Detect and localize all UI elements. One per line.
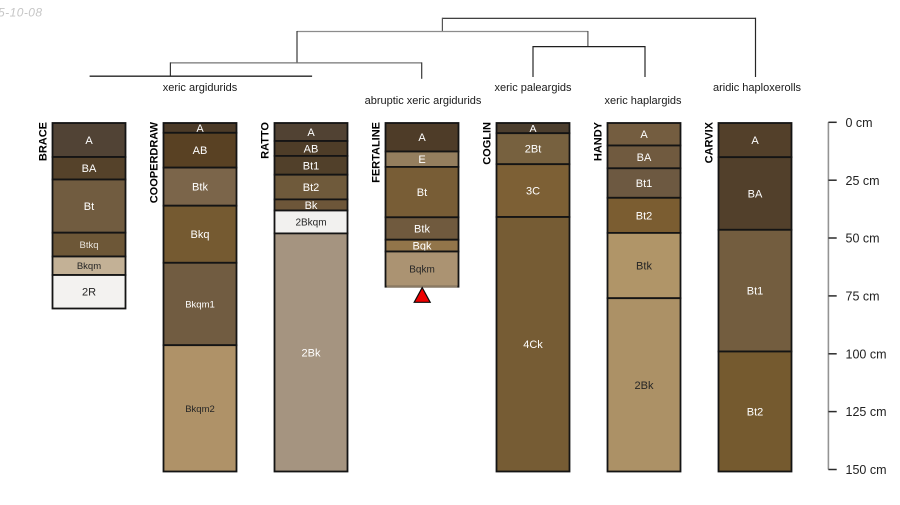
svg-text:AB: AB	[193, 145, 208, 157]
svg-text:A: A	[307, 127, 315, 139]
svg-text:50 cm: 50 cm	[846, 232, 880, 246]
svg-text:150 cm: 150 cm	[846, 463, 887, 477]
svg-text:BA: BA	[748, 189, 763, 201]
svg-text:4Ck: 4Ck	[523, 339, 543, 351]
svg-text:HANDY: HANDY	[593, 121, 605, 161]
svg-text:COOPERDRAW: COOPERDRAW	[149, 121, 161, 203]
svg-text:Bkq: Bkq	[191, 229, 210, 241]
svg-text:2R: 2R	[82, 287, 96, 299]
svg-text:2Bkqm: 2Bkqm	[295, 218, 326, 229]
svg-text:75 cm: 75 cm	[846, 290, 880, 304]
svg-text:Bt1: Bt1	[636, 178, 653, 190]
svg-text:Bt1: Bt1	[303, 160, 320, 172]
svg-text:25 cm: 25 cm	[846, 174, 880, 188]
svg-text:Bt2: Bt2	[636, 210, 653, 222]
svg-text:A: A	[751, 135, 759, 147]
svg-text:Bqkm: Bqkm	[409, 265, 435, 276]
svg-text:Btk: Btk	[192, 182, 208, 194]
svg-text:xeric haplargids: xeric haplargids	[604, 95, 682, 107]
svg-text:BRACE: BRACE	[38, 122, 50, 161]
svg-text:3C: 3C	[526, 186, 540, 198]
svg-text:BA: BA	[637, 152, 652, 164]
svg-text:xeric paleargids: xeric paleargids	[494, 82, 572, 94]
svg-text:Bt2: Bt2	[747, 407, 764, 419]
svg-text:COGLIN: COGLIN	[482, 122, 494, 165]
svg-text:5-10-08: 5-10-08	[0, 6, 43, 20]
svg-text:FERTALINE: FERTALINE	[371, 122, 383, 183]
svg-text:A: A	[418, 132, 426, 144]
svg-text:abruptic xeric argidurids: abruptic xeric argidurids	[365, 95, 482, 107]
svg-text:2Bk: 2Bk	[302, 347, 321, 359]
svg-text:A: A	[640, 129, 648, 141]
svg-text:100 cm: 100 cm	[846, 347, 887, 361]
svg-text:BA: BA	[82, 163, 97, 175]
svg-text:2Bt: 2Bt	[525, 144, 542, 156]
svg-text:AB: AB	[304, 143, 319, 155]
svg-text:125 cm: 125 cm	[846, 405, 887, 419]
svg-text:E: E	[418, 154, 425, 166]
svg-text:Btkq: Btkq	[79, 240, 98, 251]
svg-text:Bt: Bt	[417, 187, 427, 199]
svg-text:Btk: Btk	[414, 224, 430, 236]
svg-text:RATTO: RATTO	[260, 122, 272, 159]
svg-text:Bkqm: Bkqm	[77, 261, 101, 272]
svg-text:Bkqm2: Bkqm2	[185, 404, 215, 415]
svg-text:A: A	[85, 135, 93, 147]
svg-text:Bt: Bt	[84, 201, 94, 213]
svg-text:Bkqm1: Bkqm1	[185, 299, 215, 310]
svg-text:Bt2: Bt2	[303, 182, 320, 194]
svg-text:Btk: Btk	[636, 261, 652, 273]
svg-text:aridic haploxerolls: aridic haploxerolls	[713, 82, 802, 94]
svg-text:CARVIX: CARVIX	[704, 121, 716, 163]
svg-text:xeric argidurids: xeric argidurids	[163, 82, 238, 94]
svg-text:Bt1: Bt1	[747, 286, 764, 298]
svg-text:0 cm: 0 cm	[846, 116, 873, 130]
svg-text:2Bk: 2Bk	[635, 380, 654, 392]
